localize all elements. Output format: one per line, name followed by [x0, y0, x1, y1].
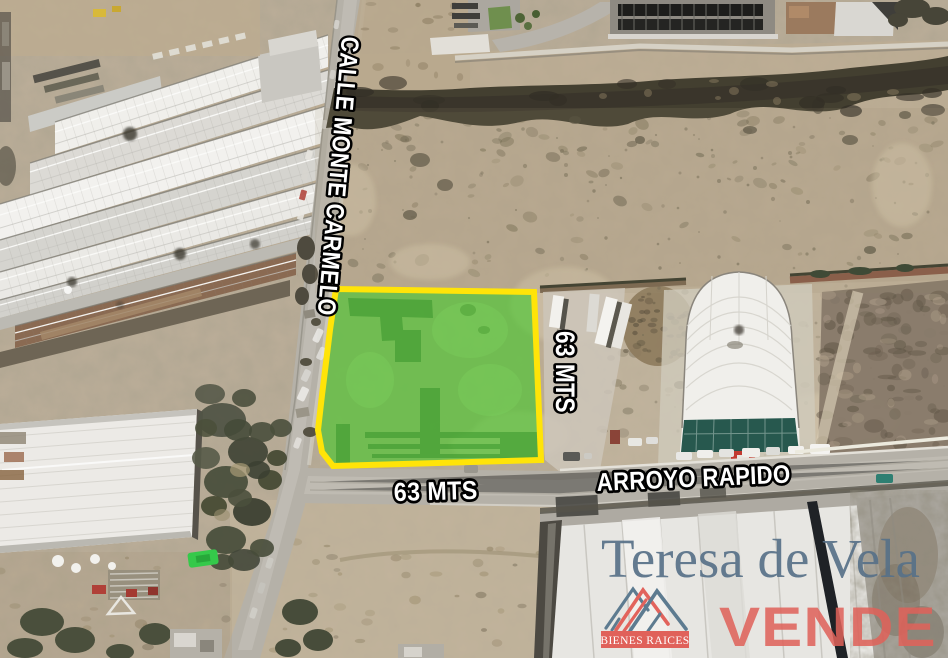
- svg-text:Teresa de Vela: Teresa de Vela: [601, 528, 920, 589]
- svg-text:63 MTS: 63 MTS: [550, 331, 580, 413]
- svg-text:VENDE: VENDE: [719, 597, 937, 658]
- svg-text:BIENES RAICES: BIENES RAICES: [600, 635, 689, 647]
- svg-text:63 MTS: 63 MTS: [393, 475, 478, 507]
